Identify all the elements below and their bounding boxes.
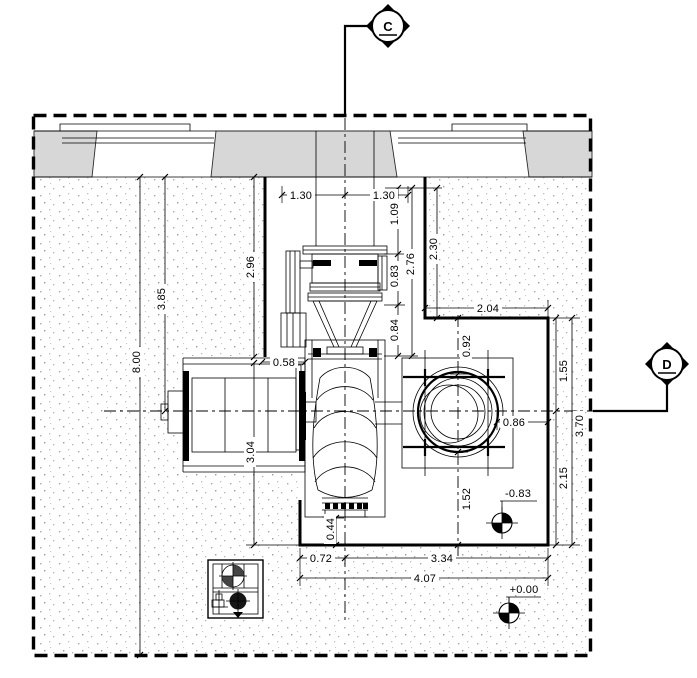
svg-text:C: C: [383, 19, 393, 34]
svg-text:8.00: 8.00: [131, 351, 143, 373]
svg-text:+0.00: +0.00: [510, 584, 539, 596]
dim-3.85: 3.85: [155, 284, 168, 314]
svg-text:1.55: 1.55: [558, 360, 570, 382]
svg-text:3.34: 3.34: [431, 553, 453, 565]
svg-text:0.86: 0.86: [503, 417, 525, 429]
svg-text:0.83: 0.83: [389, 265, 401, 287]
svg-text:3.70: 3.70: [574, 415, 586, 437]
dim-3.04: 3.04: [244, 437, 257, 467]
dim-1.30-left: 1.30: [287, 189, 315, 202]
dim-1.52: 1.52: [460, 484, 473, 514]
svg-text:0.44: 0.44: [325, 518, 337, 540]
drawing-canvas: 1.30 1.30 2.04 0.86 0.58 0.72 3.34 4.07 …: [0, 0, 697, 678]
svg-text:2.04: 2.04: [477, 303, 499, 315]
svg-text:2.30: 2.30: [428, 238, 440, 260]
svg-text:3.04: 3.04: [245, 441, 257, 463]
dim-2.15: 2.15: [557, 463, 570, 493]
dim-3.34: 3.34: [428, 552, 456, 565]
svg-text:0.84: 0.84: [389, 319, 401, 341]
svg-text:2.76: 2.76: [405, 253, 417, 275]
svg-text:0.58: 0.58: [273, 357, 295, 369]
dim-2.76: 2.76: [404, 249, 417, 279]
dim-2.96: 2.96: [244, 252, 257, 282]
dim-2.30: 2.30: [427, 234, 440, 264]
svg-text:3.85: 3.85: [156, 288, 168, 310]
svg-text:4.07: 4.07: [414, 573, 436, 585]
dim-3.70: 3.70: [573, 411, 586, 441]
svg-text:2.15: 2.15: [558, 467, 570, 489]
wall-block-right: [523, 131, 592, 177]
svg-text:-0.83: -0.83: [505, 488, 531, 500]
dim-2.04: 2.04: [474, 302, 502, 315]
dim-0.72: 0.72: [307, 552, 335, 565]
wall-block-middle: [211, 131, 397, 177]
section-marker-c: C: [345, 4, 410, 116]
dim-0.86: 0.86: [500, 416, 528, 429]
svg-text:0.92: 0.92: [461, 335, 473, 357]
dim-4.07: 4.07: [411, 572, 439, 585]
dim-0.83: 0.83: [388, 261, 401, 291]
motor-flange-left: [183, 371, 189, 461]
svg-text:D: D: [662, 357, 672, 372]
svg-text:1.30: 1.30: [290, 190, 312, 202]
dim-1.09: 1.09: [388, 199, 401, 229]
svg-text:2.96: 2.96: [245, 256, 257, 278]
svg-text:1.09: 1.09: [389, 203, 401, 225]
svg-text:0.72: 0.72: [310, 553, 332, 565]
dim-0.44: 0.44: [324, 514, 337, 544]
dim-1.55: 1.55: [557, 356, 570, 386]
dim-0.58: 0.58: [270, 356, 298, 369]
section-marker-d: D: [593, 342, 689, 411]
plan-drawing-page: 1.30 1.30 2.04 0.86 0.58 0.72 3.34 4.07 …: [0, 0, 697, 678]
dim-8.00: 8.00: [130, 347, 143, 377]
svg-text:1.52: 1.52: [461, 488, 473, 510]
dim-0.84: 0.84: [388, 315, 401, 345]
dim-0.92: 0.92: [460, 331, 473, 361]
